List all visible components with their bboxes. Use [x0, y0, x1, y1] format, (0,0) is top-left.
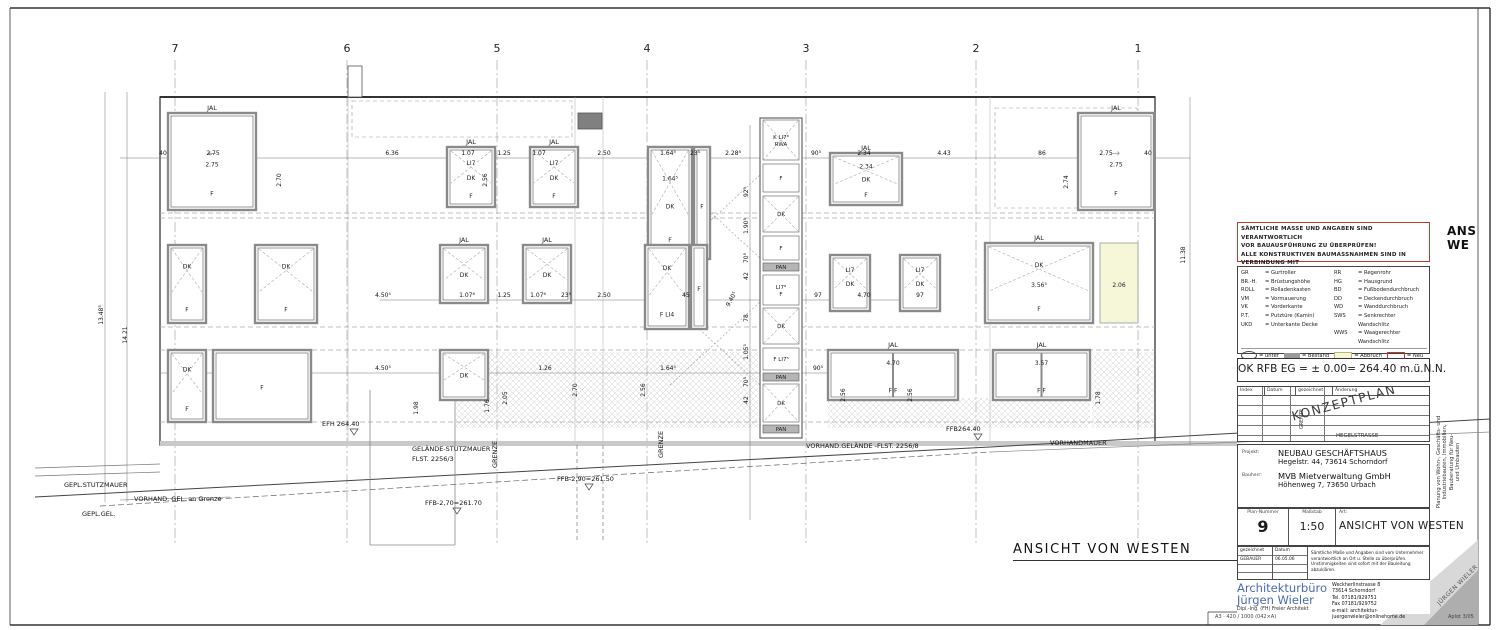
dimension-label: 4.50⁵: [375, 365, 391, 372]
window: JAL3.57F F: [993, 341, 1090, 400]
window-label: F: [864, 192, 868, 199]
stair-window-label: F: [779, 176, 782, 182]
window-label: F F: [1037, 388, 1046, 395]
window-label: 2.75: [1109, 161, 1123, 168]
grid-axis-label: 6: [344, 42, 351, 55]
dimension-label: 1.26: [538, 365, 552, 372]
annotation: GEPL.GEL.: [82, 510, 116, 518]
dimension-label: 92⁵: [743, 186, 750, 197]
street-label: HEGELSTRASSE: [1336, 433, 1378, 439]
dimension-label: 1.25: [497, 150, 511, 157]
warning-line: VOR BAUAUSFÜHRUNG ZU ÜBERPRÜFEN!: [1241, 242, 1426, 251]
window-label: DK: [550, 175, 560, 182]
window: JALDK3.56⁵F: [985, 234, 1093, 323]
revision-header: Index Datum gezeichnet Änderung: [1238, 387, 1429, 396]
dimension-label: 1.76: [484, 399, 491, 413]
window-label: JAL: [465, 138, 476, 146]
window-label: JAL: [458, 236, 469, 244]
sash-arrow-icon: →: [1112, 149, 1120, 160]
window-label: F: [284, 306, 288, 313]
dimension-label: 11.38: [1180, 246, 1187, 263]
stair-window-label: F LI7⁵: [773, 356, 788, 363]
legend-entry: UKD= Unterkante Decke: [1241, 321, 1334, 330]
disclaimer-note: Sämtliche Maße und Angaben sind vom Unte…: [1308, 547, 1429, 579]
annotation: GRENZE: [491, 441, 499, 468]
window-label: LI7: [550, 160, 559, 167]
project-address: Hegelstr. 44, 73614 Schorndorf: [1278, 458, 1387, 467]
window-label: DK: [1035, 262, 1045, 269]
dimension-label: 1.07: [532, 150, 546, 157]
window-label: JAL: [1036, 341, 1047, 349]
dimension-label: 40: [1144, 150, 1152, 157]
level-marker-icon: [585, 484, 593, 490]
window: LI7DK: [900, 255, 940, 311]
window-label: JAL: [887, 341, 898, 349]
dimension-label: 2.50: [597, 292, 611, 299]
annotation: FFB-2,70=261.70: [425, 499, 482, 507]
dimension-label: 45: [682, 292, 690, 299]
dimension-label: 86: [1038, 150, 1046, 157]
window: JAL2.75F←: [168, 104, 256, 210]
window-label: F: [1114, 190, 1118, 197]
client-address: Höhenweg 7, 73650 Urbach: [1278, 481, 1391, 490]
window-label: DK: [666, 204, 676, 211]
window: 1.64⁵DKF: [648, 147, 692, 259]
legend-entry: GR= Gurtroller: [1241, 269, 1334, 278]
footer-format: A3 · 420 / 1000 (042×A): [1215, 614, 1276, 620]
window-label: DK: [663, 265, 673, 272]
window-label: F: [260, 385, 264, 392]
grid-axis-label: 3: [803, 42, 810, 55]
dimension-label: 42: [743, 272, 750, 280]
window-label: JAL: [206, 104, 217, 112]
dimension-label: 2.34: [857, 150, 871, 157]
dimension-label: 42: [743, 396, 750, 404]
annotation: GRENZE: [657, 431, 665, 458]
dimension-label: 2.75: [1099, 150, 1113, 157]
dimension-label: 1.25: [497, 292, 511, 299]
dimension-label: 9.40⁵: [725, 290, 739, 308]
dimension-label: 13.48⁵: [98, 305, 105, 325]
legend-entry: BD= Fußbodendurchbruch: [1334, 286, 1427, 295]
plan-number: 9: [1241, 515, 1285, 539]
grid-axis-label: 1: [1135, 42, 1142, 55]
stair-window-label: PAN: [776, 427, 787, 433]
grid-axis-label: 5: [494, 42, 501, 55]
window-label: F: [210, 190, 214, 197]
window-label: F: [697, 286, 701, 293]
warning-line: SÄMTLICHE MASSE UND ANGABEN SIND VERANTW…: [1241, 225, 1426, 242]
window-label: DK: [460, 272, 470, 279]
dimension-label: 2.56: [840, 388, 847, 402]
dimension-label: 2.70: [276, 173, 283, 187]
dimension-label: 2.56: [640, 383, 647, 397]
plan-info-row: Plan-Nummer 9 Maßstab 1:50 Art: ANSICHT …: [1237, 508, 1430, 546]
window-label: DK: [916, 281, 926, 288]
legend-entry: WWS= Waagerechter Wandschlitz: [1334, 329, 1427, 346]
client-label: Bauherr:: [1242, 471, 1274, 490]
window-label: JAL: [548, 138, 559, 146]
legend-entry: BR.-H.= Brüstungshöhe: [1241, 278, 1334, 287]
legend-left-column: GR= GurtrollerBR.-H.= BrüstungshöheROLL=…: [1241, 269, 1334, 346]
grid-axis-label: 7: [172, 42, 179, 55]
window: DKF: [168, 350, 206, 422]
dimension-label: 1.90⁵: [743, 218, 750, 234]
stair-window-label: PAN: [776, 265, 787, 271]
window: LI7DK: [830, 255, 870, 311]
dimension-label: 2.50: [597, 150, 611, 157]
window: JALLI7DKF: [447, 138, 495, 207]
dimension-label: 4.43: [937, 150, 951, 157]
revision-table: Index Datum gezeichnet Änderung KONZEPTP…: [1237, 386, 1430, 442]
services-side-text: Planung von Wohn-, Geschäfts- und Indust…: [1436, 392, 1462, 532]
window-label: F LI4: [660, 311, 674, 318]
legend-entry: ROLL= Rolladenkasten: [1241, 286, 1334, 295]
dimension-label: 2.70: [572, 383, 579, 397]
window: DKF: [255, 245, 317, 323]
dimension-label: 90⁵: [811, 150, 822, 157]
dimension-label: 97: [916, 292, 924, 299]
window: DK: [440, 350, 488, 400]
level-marker-icon: [453, 508, 461, 514]
legend-right-column: RR= RegenrohrHG= HausgrundBD= Fußbodendu…: [1334, 269, 1427, 346]
dimension-label: 1.07⁶: [530, 292, 546, 299]
annotation: VORHANDMAUER: [1050, 439, 1107, 447]
window: F: [694, 147, 710, 259]
dimension-label: 2.56: [907, 388, 914, 402]
dimension-label: 70⁵: [743, 252, 750, 263]
stair-window-label: F: [779, 246, 782, 252]
dimension-label: 23⁵: [690, 150, 701, 157]
window-label: DK: [862, 177, 872, 184]
signature-row: gezeichnet GEBAUER Datum 06.05.06 Sämtli…: [1237, 546, 1430, 580]
window-label: F F: [889, 388, 898, 395]
dimension-label: 2.56: [482, 173, 489, 187]
dimension-label: 2.74: [1063, 175, 1070, 189]
legend-entry: DD= Deckendurchbruch: [1334, 295, 1427, 304]
dimension-label: 1.78: [1095, 391, 1102, 405]
dimension-label: 78: [743, 314, 750, 322]
stair-window-label: K LI7⁸: [773, 134, 790, 141]
window-label: DK: [183, 367, 193, 374]
level-datum-box: OK RFB EG = ± 0.00= 264.40 m.ü.N.N.: [1237, 358, 1430, 382]
sheet-code: ANS WE: [1447, 224, 1476, 252]
grid-axis-label: 2: [973, 42, 980, 55]
window-label: F: [700, 204, 704, 211]
architect-name: Jürgen Wieler: [1237, 594, 1332, 606]
dimension-label: 1.07⁶: [459, 292, 475, 299]
window-label: DK: [543, 272, 553, 279]
dimension-label: 90⁵: [813, 365, 824, 372]
stair-window-label: RWA: [775, 142, 788, 148]
warning-box: SÄMTLICHE MASSE UND ANGABEN SIND VERANTW…: [1237, 222, 1430, 262]
stairwell-strip: K LI7⁸RWAFDKFPANLI7⁸FDKF LI7⁵PANDKPAN: [760, 118, 802, 438]
window-label: DK: [460, 373, 470, 380]
window-label: 2.34: [859, 164, 873, 171]
project-label: Projekt:: [1242, 448, 1274, 467]
window-label: LI7: [916, 267, 925, 274]
window-label: LI7: [846, 267, 855, 274]
stair-window-label: DK: [777, 401, 785, 407]
window-label: 1.64⁵: [662, 176, 678, 183]
legend-box: GR= GurtrollerBR.-H.= BrüstungshöheROLL=…: [1237, 266, 1430, 354]
window: F: [213, 350, 311, 422]
client-name: MVB Mietverwaltung GmbH: [1278, 471, 1391, 481]
dimension-label: 97: [814, 292, 822, 299]
window-label: DK: [282, 263, 292, 270]
window-label: DK: [846, 281, 856, 288]
architect-block: Architekturbüro Jürgen Wieler Dipl.-Ing.…: [1237, 582, 1430, 614]
window-label: 3.56⁵: [1031, 282, 1047, 289]
window-label: DK: [183, 263, 193, 270]
dimension-label: 4.70: [857, 292, 871, 299]
dimension-label: 2.28⁸: [725, 150, 741, 157]
annotation: VORHAND.GELÄNDE -FLST. 2256/8: [806, 441, 919, 450]
window-label: F: [552, 193, 556, 200]
window-label: 4.70: [886, 360, 900, 367]
annotation: EFH 264.40: [322, 420, 360, 428]
annotation: VORHAND. GEL. an Grenze: [134, 495, 221, 503]
window: DKF LI4: [645, 245, 689, 329]
window: 2.06: [1100, 243, 1138, 323]
level-marker-icon: [974, 434, 982, 440]
stair-window-label: DK: [777, 212, 785, 218]
window-label: F: [185, 406, 189, 413]
window: F: [691, 245, 707, 329]
dimension-label: 40: [159, 150, 167, 157]
annotation: FFB264.40: [946, 425, 981, 433]
scale-value: 1:50: [1292, 515, 1332, 539]
dimension-label: 1.05⁵: [743, 344, 750, 360]
dimension-label: 1.98: [413, 401, 420, 415]
project-block: Projekt: NEUBAU GESCHÄFTSHAUS Hegelstr. …: [1237, 444, 1430, 508]
legend-entry: P.T.= Putztüre (Kamin): [1241, 312, 1334, 321]
legend-entry: WD= Wanddurchbruch: [1334, 303, 1427, 312]
dimension-label: 1.64⁵: [660, 365, 676, 372]
dimension-label: 2.75: [206, 150, 220, 157]
annotation: FFB-2,90=261.50: [557, 475, 614, 483]
window-label: JAL: [1110, 104, 1121, 112]
annotation: GEPL.STUTZMAUER: [64, 481, 128, 489]
window-label: 3.57: [1035, 360, 1049, 367]
drafter-name: GEBAUER: [1238, 556, 1272, 565]
window: DKF: [168, 245, 206, 323]
legend-entry: VK= Vorderkante: [1241, 303, 1334, 312]
legend-entry: HG= Hausgrund: [1334, 278, 1427, 287]
annotation: FLST. 2256/3: [412, 455, 454, 463]
dimension-label: 70⁵: [743, 376, 750, 387]
level-marker-icon: [350, 429, 358, 435]
draft-date: 06.05.06: [1273, 556, 1307, 565]
plan-sheet: 7654321JAL2.75F←JALLI7DKFJALLI7DKF1.64⁵D…: [0, 0, 1500, 630]
dimension-label: 23⁵: [561, 292, 572, 299]
window-label: 2.06: [1112, 282, 1126, 289]
dimension-label: 1.64⁵: [660, 150, 676, 157]
grenze-label: GRENZE: [1300, 409, 1305, 429]
legend-entry: SWS= Senkrechter Wandschlitz: [1334, 312, 1427, 329]
window-label: JAL: [1033, 234, 1044, 242]
footer-plot: Aplot 3/05: [1448, 614, 1474, 620]
window: JAL2.75F→: [1078, 104, 1154, 210]
legend-entry: VM= Vormauerung: [1241, 295, 1334, 304]
window-label: DK: [467, 175, 477, 182]
architect-contact: Weckherlinstrasse 8 73614 Schorndorf Tel…: [1332, 582, 1430, 614]
window-label: F: [1037, 306, 1041, 313]
window-label: JAL: [541, 236, 552, 244]
stair-window-label: PAN: [776, 375, 787, 381]
window-label: F: [469, 193, 473, 200]
dimension-label: 6.36: [385, 150, 399, 157]
dimension-label: 14.21: [122, 326, 129, 343]
window-label: LI7: [467, 160, 476, 167]
stair-window-label: DK: [777, 324, 785, 330]
stair-window-label: F: [779, 292, 782, 298]
stair-window-label: LI7⁸: [776, 284, 787, 291]
window-label: F: [185, 306, 189, 313]
window-label: F: [668, 237, 672, 244]
window: JALLI7DKF: [530, 138, 578, 207]
dimension-label: 4.50⁵: [375, 292, 391, 299]
window: JAL4.70F F: [828, 341, 958, 400]
dimension-label: 2.05: [502, 391, 509, 405]
dimension-label: 1.07: [461, 150, 475, 157]
legend-entry: RR= Regenrohr: [1334, 269, 1427, 278]
window-label: 2.75: [205, 161, 219, 168]
grid-axis-label: 4: [644, 42, 651, 55]
project-name: NEUBAU GESCHÄFTSHAUS: [1278, 448, 1387, 458]
annotation: GELÄNDE-STUTZMAUER: [412, 444, 491, 453]
